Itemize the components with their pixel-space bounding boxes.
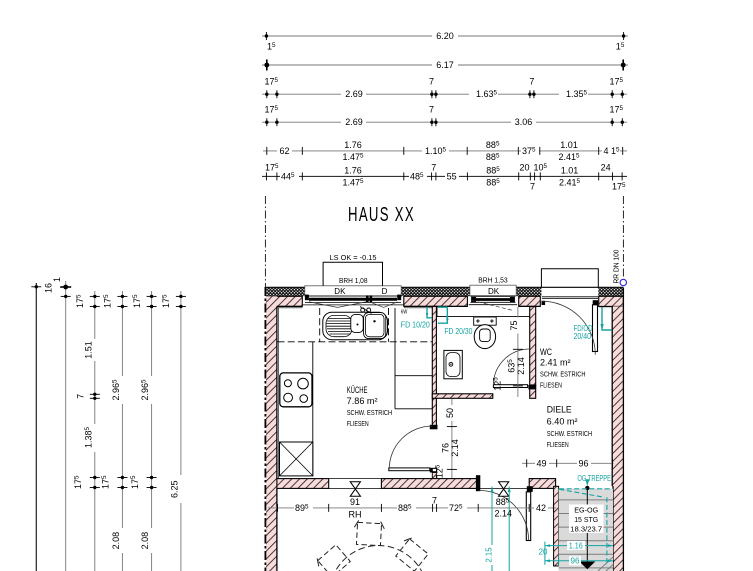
svg-text:WC: WC	[540, 347, 552, 357]
svg-text:1.51: 1.51	[84, 341, 94, 359]
svg-text:2.15: 2.15	[484, 547, 493, 563]
svg-text:1.01: 1.01	[560, 140, 578, 150]
svg-text:49: 49	[536, 458, 546, 468]
svg-text:2.14: 2.14	[516, 357, 526, 375]
svg-text:2.08: 2.08	[111, 532, 121, 550]
svg-text:6.40 m²: 6.40 m²	[547, 417, 578, 427]
svg-text:2.14: 2.14	[495, 508, 513, 518]
svg-text:20/40: 20/40	[574, 332, 592, 341]
svg-text:3.06: 3.06	[515, 117, 533, 127]
svg-text:OG TREPPE: OG TREPPE	[577, 474, 611, 483]
svg-text:20: 20	[539, 548, 549, 557]
svg-text:2.08: 2.08	[140, 532, 150, 550]
svg-text:20: 20	[519, 162, 529, 172]
svg-text:6.17: 6.17	[436, 60, 454, 70]
svg-text:7.86 m²: 7.86 m²	[347, 396, 378, 406]
svg-text:RH: RH	[349, 509, 362, 519]
svg-text:7: 7	[529, 77, 534, 87]
svg-text:50: 50	[445, 408, 455, 418]
svg-text:6.20: 6.20	[436, 31, 454, 41]
svg-text:RR DN 100: RR DN 100	[612, 250, 621, 284]
svg-text:91: 91	[350, 497, 360, 507]
svg-text:7: 7	[76, 394, 86, 399]
svg-text:6W: 6W	[401, 309, 408, 315]
svg-text:24: 24	[601, 162, 611, 172]
svg-text:BRH 1,08: BRH 1,08	[339, 276, 368, 285]
svg-text:DIELE: DIELE	[547, 405, 572, 415]
svg-text:2.69: 2.69	[345, 89, 363, 99]
svg-text:7: 7	[432, 495, 437, 505]
svg-text:KÜCHE: KÜCHE	[347, 385, 368, 395]
svg-text:FLIESEN: FLIESEN	[540, 380, 562, 389]
svg-text:75: 75	[509, 320, 519, 330]
svg-text:42: 42	[536, 503, 546, 513]
svg-text:18.3/23.7: 18.3/23.7	[570, 524, 602, 533]
svg-text:1.76: 1.76	[344, 165, 362, 175]
svg-text:SCHW. ESTRICH: SCHW. ESTRICH	[547, 429, 593, 438]
svg-text:1.16: 1.16	[569, 541, 583, 550]
svg-text:BRH 1,53: BRH 1,53	[478, 275, 507, 284]
svg-text:EG-OG: EG-OG	[574, 505, 598, 514]
svg-text:D: D	[382, 287, 388, 296]
svg-text:FLIESEN: FLIESEN	[547, 440, 569, 449]
svg-text:1.01: 1.01	[561, 165, 579, 175]
svg-text:DK: DK	[334, 287, 346, 296]
svg-text:7: 7	[429, 77, 434, 87]
svg-text:6.25: 6.25	[170, 480, 180, 498]
svg-text:7: 7	[431, 162, 436, 172]
svg-text:1: 1	[52, 277, 62, 282]
svg-text:DK: DK	[488, 287, 500, 296]
svg-text:55: 55	[447, 171, 457, 181]
svg-text:FD 20/30: FD 20/30	[444, 327, 472, 336]
svg-text:LS OK = -0.15: LS OK = -0.15	[330, 253, 377, 262]
svg-text:96: 96	[571, 557, 581, 566]
svg-text:FLIESEN: FLIESEN	[347, 419, 369, 428]
svg-text:62: 62	[279, 146, 289, 156]
svg-text:1.76: 1.76	[344, 140, 362, 150]
svg-text:SCHW. ESTRICH: SCHW. ESTRICH	[347, 408, 393, 417]
svg-text:16: 16	[44, 283, 54, 293]
svg-text:2.69: 2.69	[345, 117, 363, 127]
svg-text:7: 7	[530, 181, 535, 191]
svg-text:76: 76	[440, 443, 450, 453]
svg-text:FD 10/20: FD 10/20	[401, 321, 430, 330]
svg-text:2.14: 2.14	[450, 439, 460, 457]
svg-text:HAUS XX: HAUS XX	[348, 204, 415, 226]
svg-text:7: 7	[429, 105, 434, 115]
svg-text:2.41 m²: 2.41 m²	[540, 358, 571, 368]
svg-text:15 STG: 15 STG	[574, 515, 598, 524]
svg-text:SCHW. ESTRICH: SCHW. ESTRICH	[540, 370, 586, 379]
svg-text:96: 96	[578, 458, 588, 468]
